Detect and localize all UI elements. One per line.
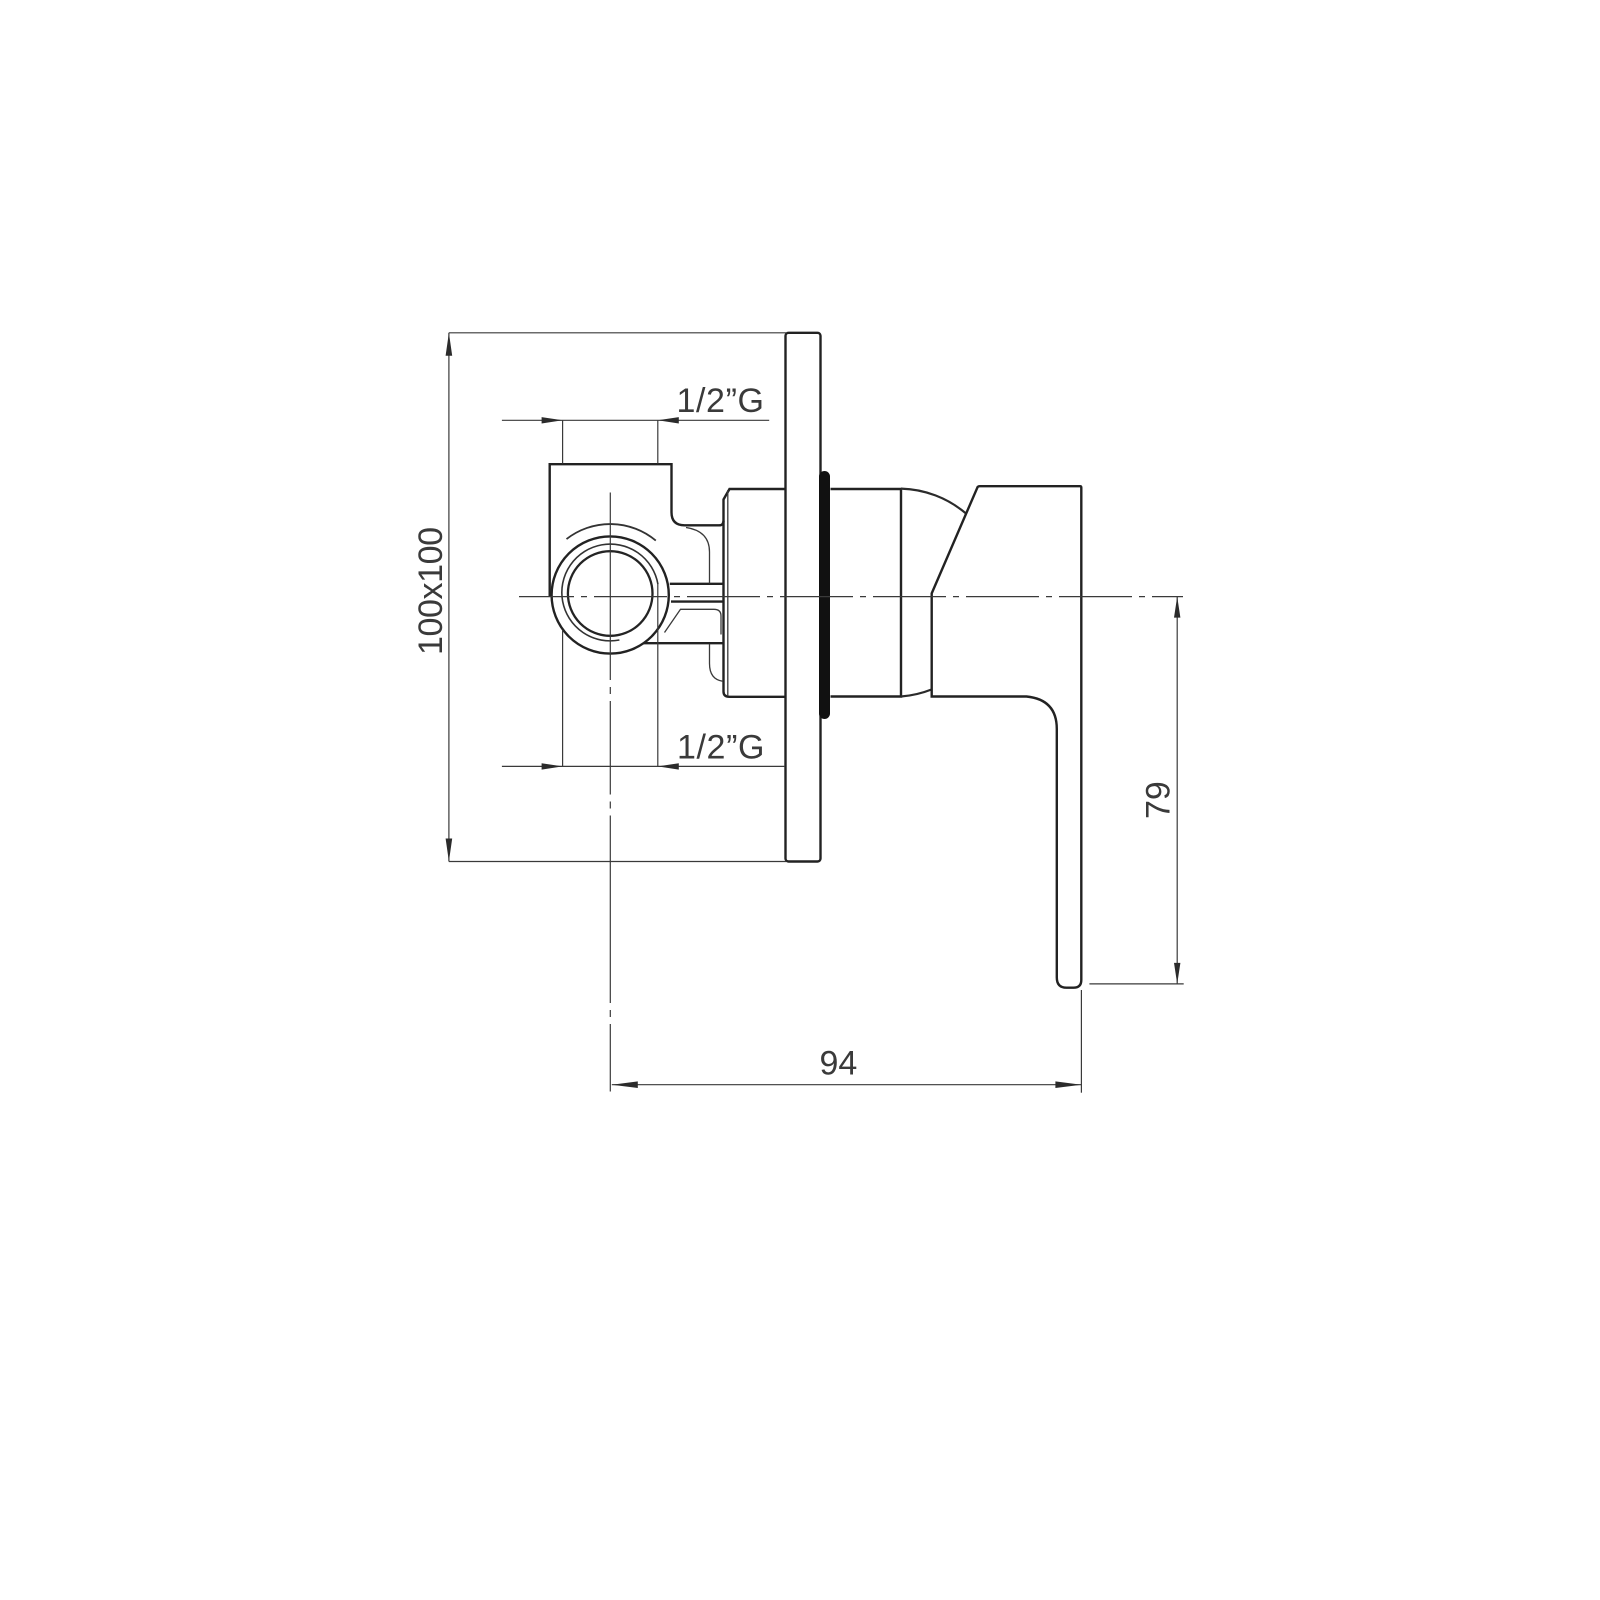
svg-text:79: 79: [1140, 781, 1178, 819]
svg-text:100x100: 100x100: [412, 527, 450, 655]
svg-text:1/2”G: 1/2”G: [677, 382, 765, 420]
svg-text:94: 94: [820, 1045, 858, 1083]
svg-text:1/2”G: 1/2”G: [677, 729, 765, 767]
